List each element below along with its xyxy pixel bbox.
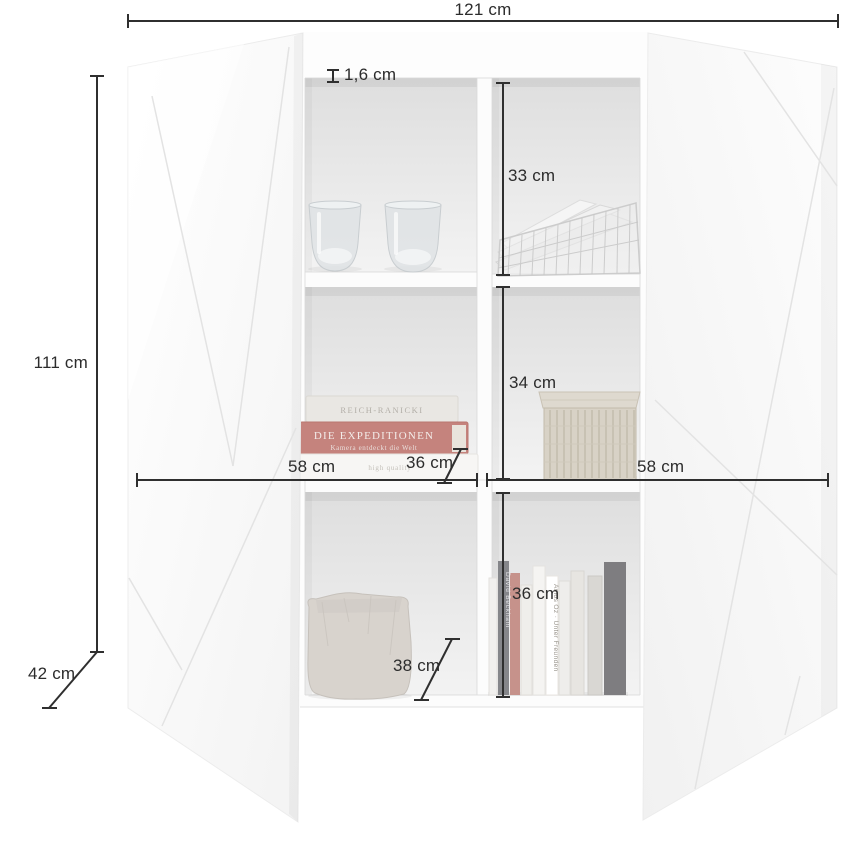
right-door [643, 33, 837, 820]
compartment-33-label: 33 cm [508, 167, 555, 186]
book-spine-text-red-2: Kamera entdeckt die Welt [331, 444, 418, 452]
total-depth-label: 42 cm [28, 665, 75, 684]
left-width-58-label: 58 cm [288, 458, 335, 477]
book-spine-text-top: REICH-RANICKI [340, 405, 423, 415]
right-width-58-label: 58 cm [637, 458, 684, 477]
book-spine-text-beckham: David Beckham [504, 572, 511, 628]
left-door [128, 33, 303, 822]
shelf-thickness-label: 1,6 cm [344, 66, 396, 85]
compartment-34-label: 34 cm [509, 374, 556, 393]
inner-depth-36-label: 36 cm [406, 454, 453, 473]
bottom-depth-38-label: 38 cm [393, 657, 440, 676]
height-dimension-line [90, 76, 104, 652]
compartment-36-label: 36 cm [512, 585, 559, 604]
total-width-label: 121 cm [433, 1, 533, 20]
book-spine-text-red-1: DIE EXPEDITIONEN [314, 430, 434, 442]
shelf-middle [305, 480, 640, 492]
highboard-diagram: REICH-RANICKI DIE EXPEDITIONEN Kamera en… [0, 0, 868, 868]
standing-books-row: David Beckham Amos Oz · Unter Freunden [488, 561, 628, 696]
wicker-storage-box [539, 392, 640, 481]
dimension-diagram-canvas: REICH-RANICKI DIE EXPEDITIONEN Kamera en… [0, 0, 868, 868]
paper-bag [308, 593, 412, 700]
shelf-top-left [305, 272, 477, 287]
total-height-label: 111 cm [28, 354, 88, 373]
